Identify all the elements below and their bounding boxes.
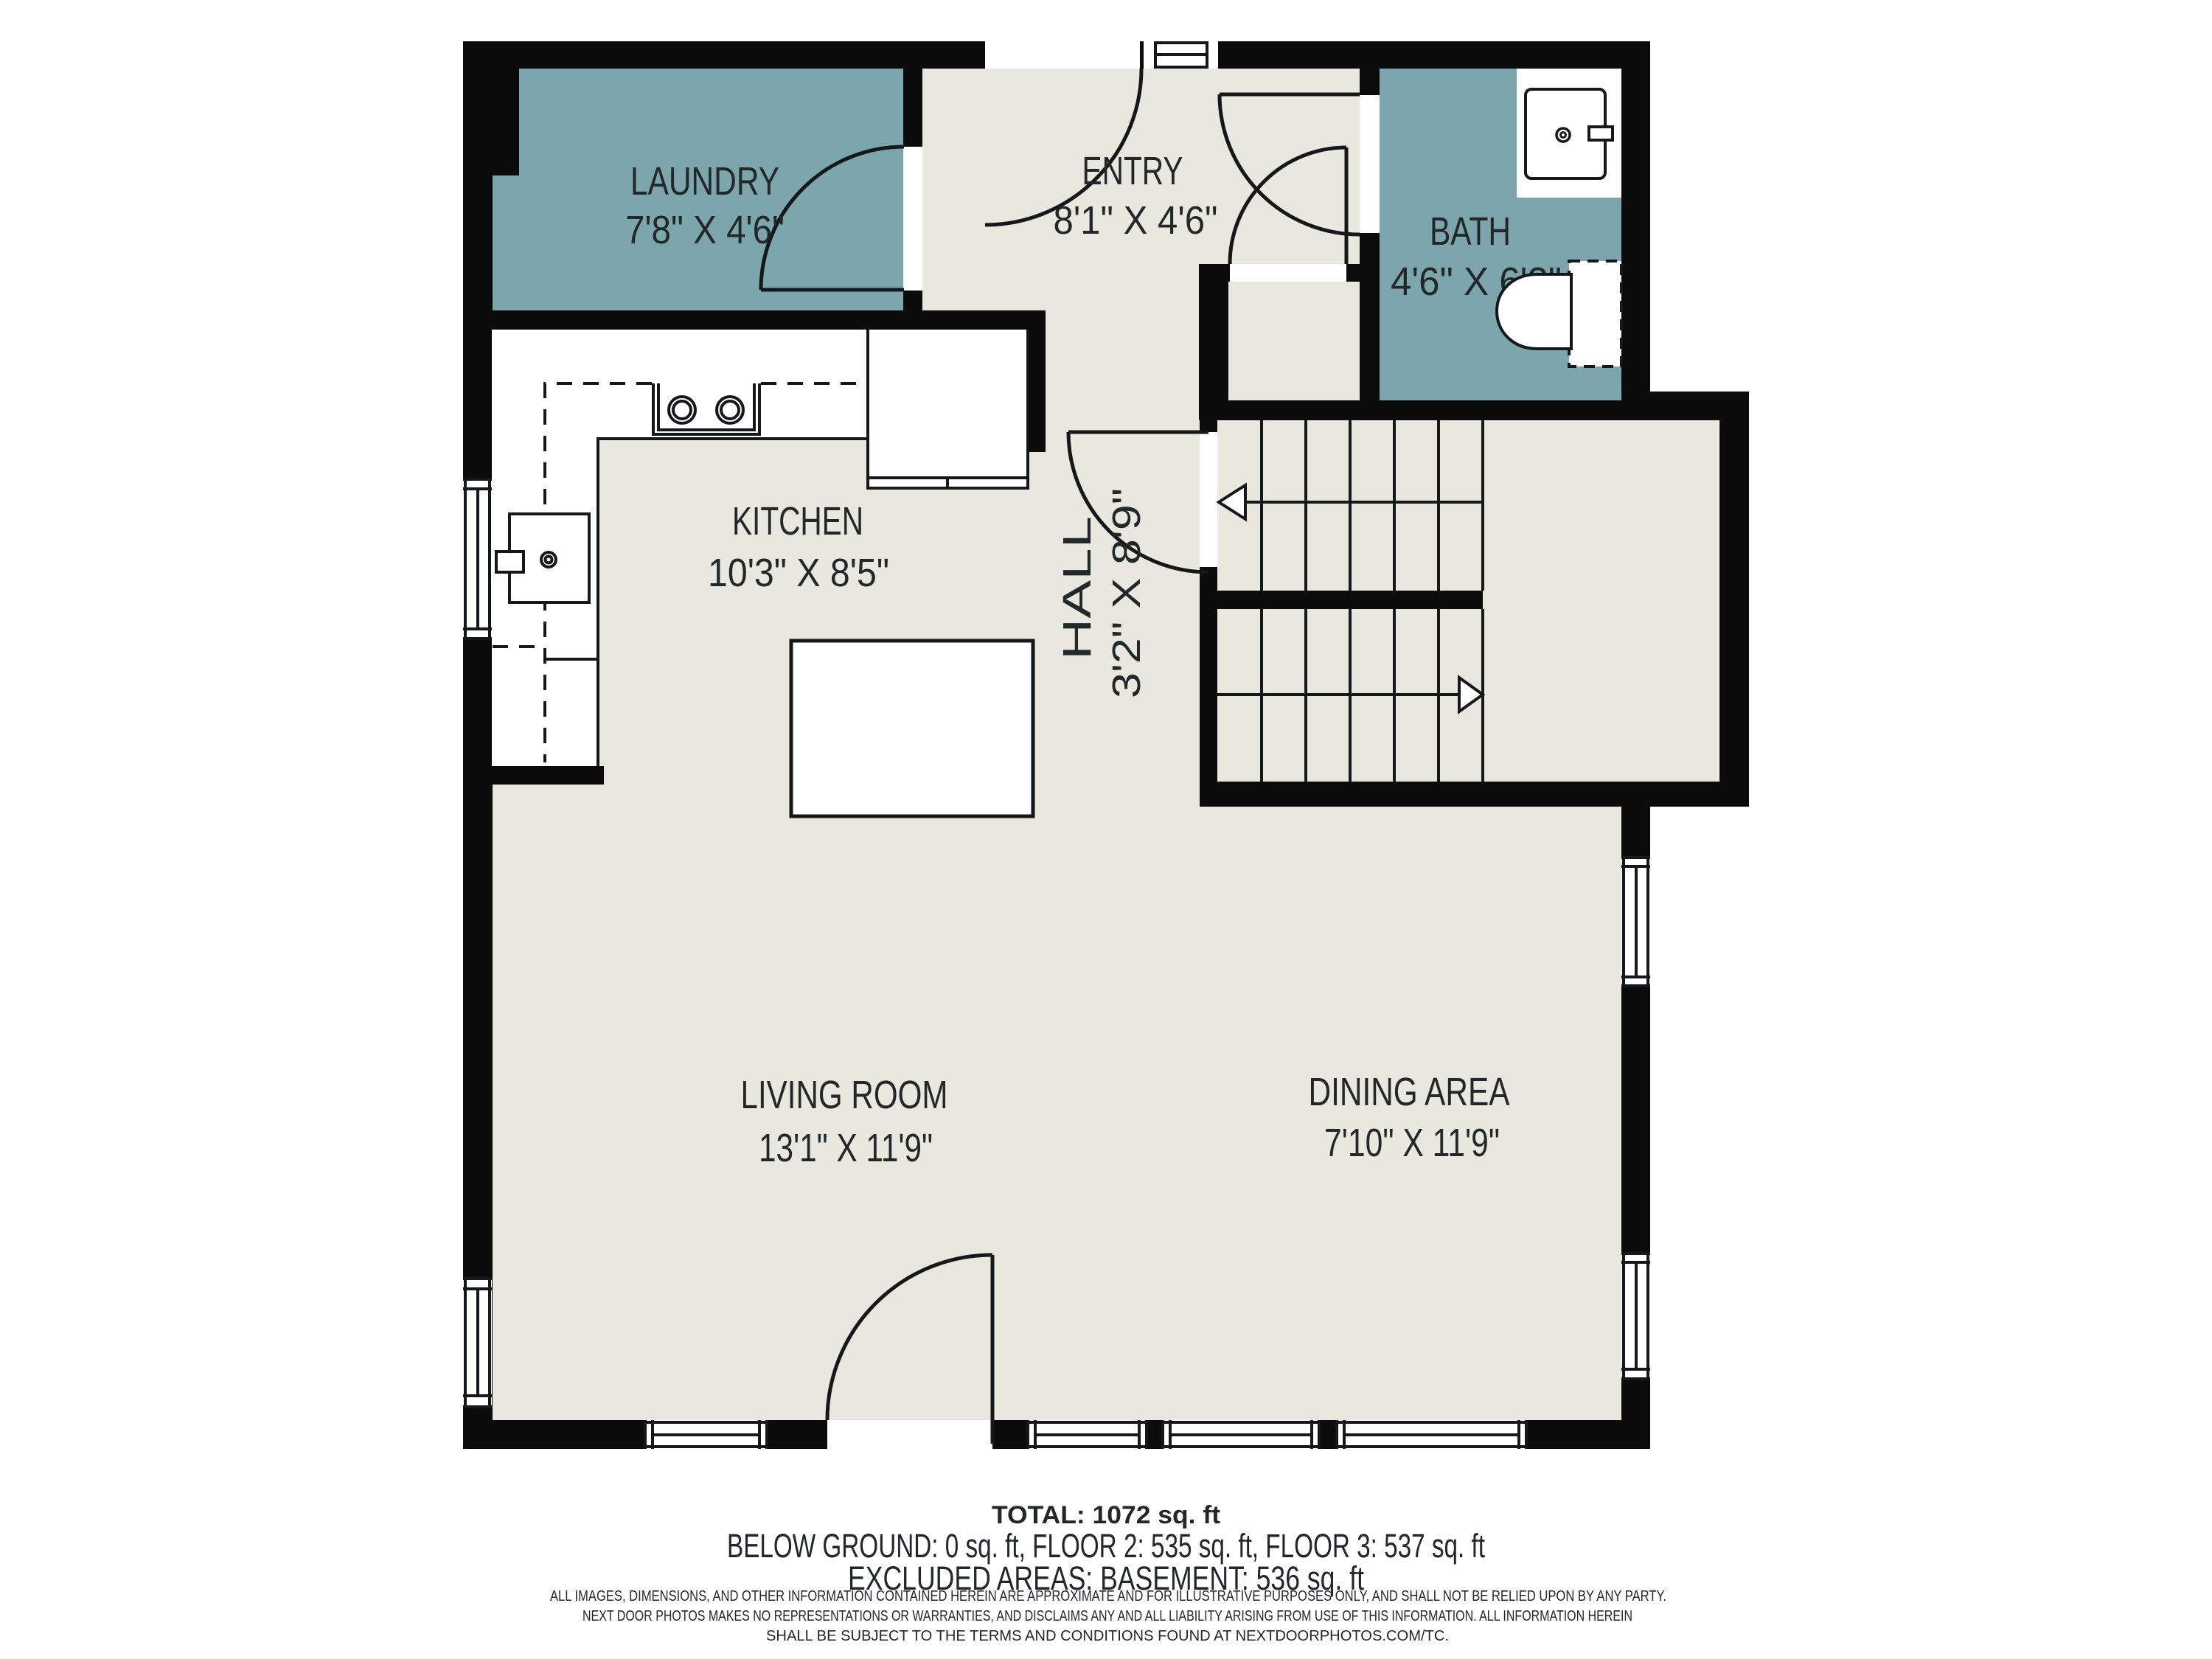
svg-text:LIVING ROOM: LIVING ROOM — [741, 1073, 948, 1117]
svg-text:TOTAL: 1072 sq. ft: TOTAL: 1072 sq. ft — [992, 1501, 1220, 1529]
svg-text:DINING AREA: DINING AREA — [1309, 1070, 1510, 1114]
svg-text:3'2" X 8'9": 3'2" X 8'9" — [1105, 488, 1149, 698]
svg-text:13'1" X 11'9": 13'1" X 11'9" — [759, 1126, 933, 1170]
svg-text:KITCHEN: KITCHEN — [732, 499, 863, 543]
svg-text:ALL IMAGES, DIMENSIONS, AND OT: ALL IMAGES, DIMENSIONS, AND OTHER INFORM… — [550, 1588, 1666, 1604]
svg-text:10'3" X 8'5": 10'3" X 8'5" — [708, 551, 889, 595]
svg-text:NEXT DOOR PHOTOS MAKES NO REPR: NEXT DOOR PHOTOS MAKES NO REPRESENTATION… — [582, 1608, 1632, 1624]
svg-text:7'8" X 4'6": 7'8" X 4'6" — [625, 208, 785, 252]
svg-text:BATH: BATH — [1430, 209, 1511, 254]
svg-text:8'1" X 4'6": 8'1" X 4'6" — [1054, 198, 1218, 243]
svg-text:SHALL BE SUBJECT TO THE TERMS: SHALL BE SUBJECT TO THE TERMS AND CONDIT… — [766, 1628, 1449, 1644]
svg-text:ENTRY: ENTRY — [1082, 149, 1183, 193]
svg-text:HALL: HALL — [1055, 516, 1099, 660]
svg-text:LAUNDRY: LAUNDRY — [630, 159, 779, 204]
svg-text:7'10" X 11'9": 7'10" X 11'9" — [1324, 1121, 1500, 1165]
